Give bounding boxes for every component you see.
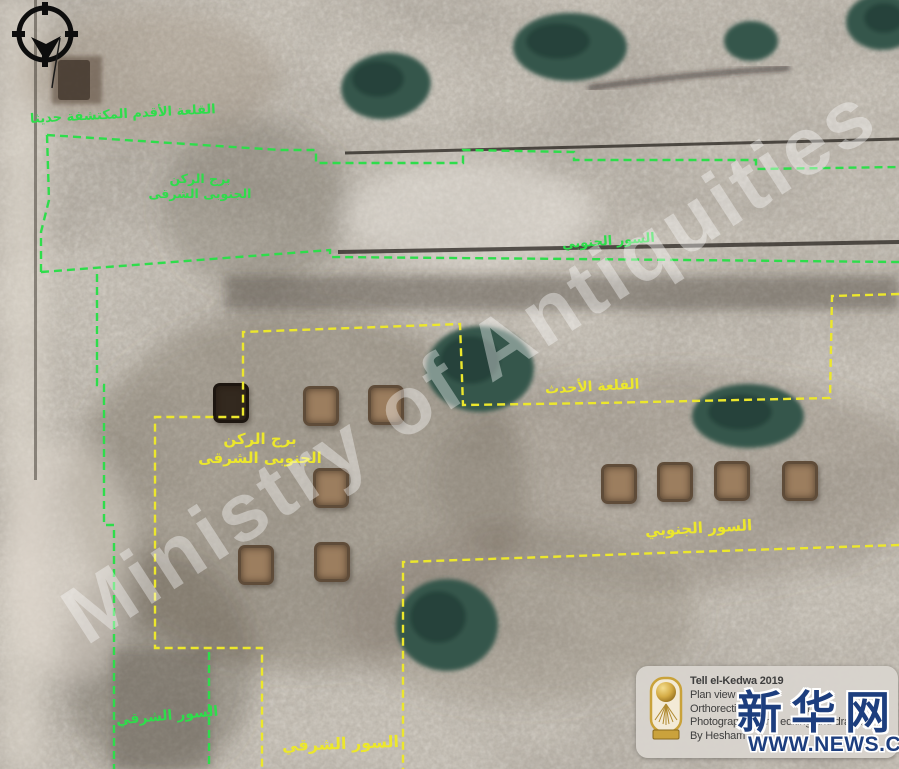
old-fortress-west-line [41,135,49,272]
site-plan-photo: القلعة الأقدم المكتشفة حديثا برج الركن ا… [0,0,899,769]
label-new-east-wall: السور الشرقي [282,732,400,755]
xinhua-url: WWW.NEWS.CN [748,733,899,757]
antiquities-logo-icon [649,676,683,742]
xinhua-wordmark: 新华网 [737,676,899,741]
label-new-se-corner-tower: برج الركن الجنوبى الشرقى [180,430,340,468]
old-fortress-north-wall-line [47,135,899,169]
north-arrow-compass [12,2,78,88]
old-fortress-east-wall-line [97,274,114,769]
old-fortress-south-wall-line [41,250,899,272]
label-old-se-corner-tower: برج الركن الجنوبى الشرقى [120,171,280,201]
